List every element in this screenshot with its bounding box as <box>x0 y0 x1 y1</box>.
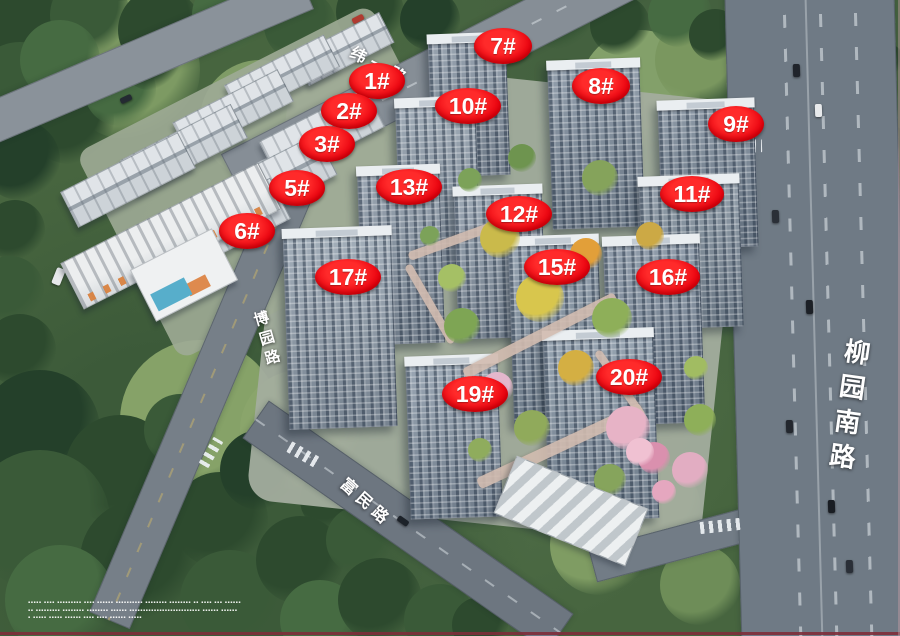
garden-tree <box>582 160 618 196</box>
car <box>772 210 779 223</box>
building-label-19: 19# <box>442 376 508 412</box>
building-label-10: 10# <box>435 88 501 124</box>
building-label-16: 16# <box>636 259 700 295</box>
building-label-6: 6# <box>219 213 275 249</box>
lane-marking <box>818 0 839 636</box>
car <box>806 300 813 314</box>
building-label-8: 8# <box>572 68 630 104</box>
car <box>815 104 822 117</box>
garden-tree <box>684 404 716 436</box>
garden-tree <box>438 264 466 292</box>
building-label-11: 11# <box>660 176 724 212</box>
garden-tree <box>508 144 536 172</box>
garden-tree <box>684 356 708 380</box>
building-label-12: 12# <box>486 196 552 232</box>
garden-tree <box>626 438 654 466</box>
roof-penthouse <box>535 237 570 244</box>
building-label-5: 5# <box>269 170 325 206</box>
bottom-edge-line <box>0 632 900 635</box>
lane-marking <box>782 0 803 636</box>
garden-tree <box>558 350 594 386</box>
garden-tree <box>468 438 492 462</box>
building-label-17: 17# <box>315 259 381 295</box>
lane-marking <box>853 0 874 636</box>
car <box>793 64 800 77</box>
garden-tree <box>592 298 632 338</box>
garden-tree <box>652 480 676 504</box>
garden-tree <box>672 452 708 488</box>
disclaimer-line: ▪▪ ▪▪▪▪▪▪▪▪▪ ▪▪▪▪▪▪▪▪ ▪▪▪▪▪▪▪▪ ▪▪▪▪▪▪ ▪▪… <box>28 608 498 616</box>
building-label-20: 20# <box>596 359 662 395</box>
masterplan-rendering: 1#2#3#5#6#7#8#9#10#11#12#13#15#16#17#19#… <box>0 0 900 636</box>
highrise-tower <box>283 226 398 430</box>
tree-cluster <box>0 200 45 260</box>
disclaimer-text: ▪▪▪▪▪ ▪▪▪▪ ▪▪▪▪▪▪▪▪▪ ▪▪▪▪ ▪▪▪▪▪▪ ▪▪▪▪▪▪▪… <box>28 600 498 623</box>
car <box>786 420 793 433</box>
building-label-15: 15# <box>524 249 590 285</box>
garden-tree <box>458 168 482 192</box>
garden-tree <box>444 308 480 344</box>
building-label-2: 2# <box>321 93 377 129</box>
garden-tree <box>514 410 550 446</box>
disclaimer-line: ▪ ▪▪▪▪▪ ▪▪▪▪▪ ▪▪▪▪▪▪ ▪▪▪▪ ▪▪▪▪ ▪▪▪▪▪▪ ▪▪… <box>28 615 498 623</box>
car <box>846 560 853 573</box>
car <box>828 500 835 513</box>
roof-penthouse <box>433 357 469 364</box>
building-label-3: 3# <box>299 126 355 162</box>
disclaimer-line: ▪▪▪▪▪ ▪▪▪▪ ▪▪▪▪▪▪▪▪▪ ▪▪▪▪ ▪▪▪▪▪▪ ▪▪▪▪▪▪▪… <box>28 600 498 608</box>
building-label-13: 13# <box>376 169 442 205</box>
garden-tree <box>420 226 440 246</box>
roof-penthouse <box>480 187 515 194</box>
building-label-9: 9# <box>708 106 764 142</box>
garden-tree <box>636 222 664 250</box>
road-liuyuan-surface <box>724 0 900 636</box>
building-label-7: 7# <box>474 28 532 64</box>
